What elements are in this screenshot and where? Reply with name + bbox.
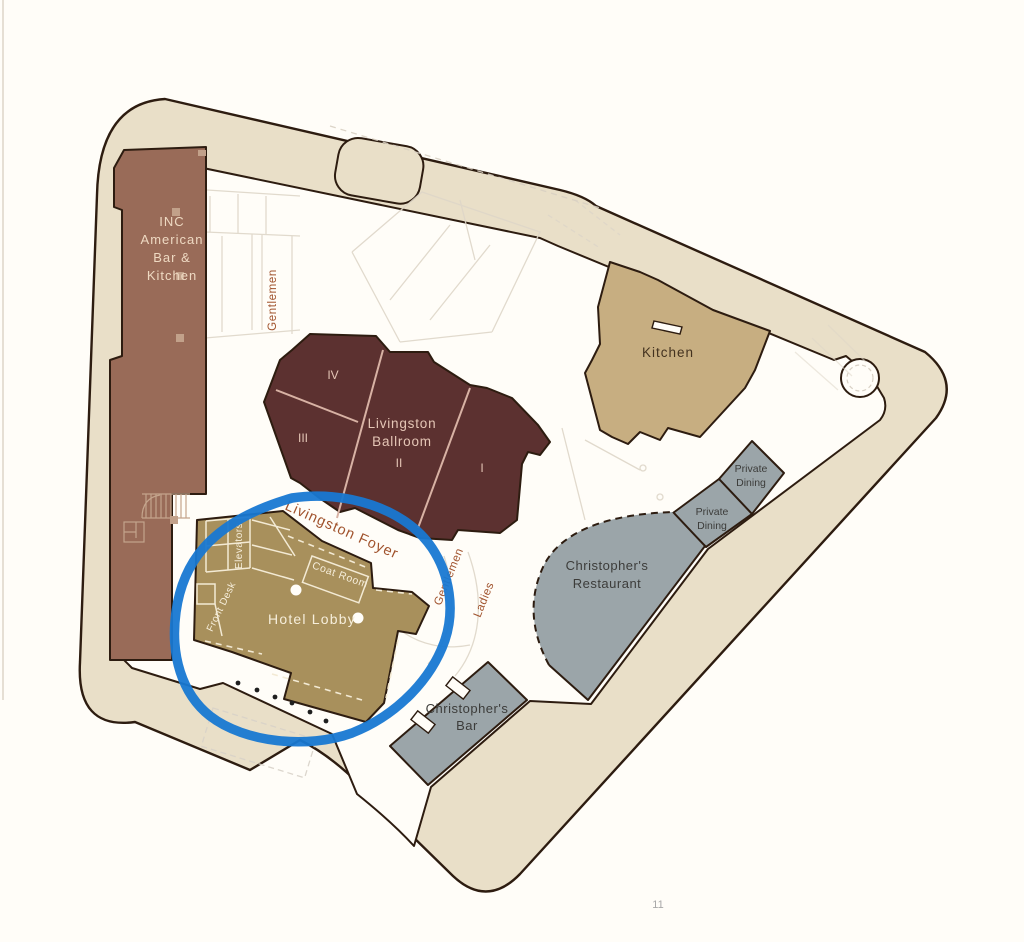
- ballroom-section-3: III: [298, 431, 308, 445]
- gentlemen-upper-label: Gentlemen: [267, 269, 279, 331]
- lobby-label: Hotel Lobby: [268, 611, 356, 627]
- inc-label-1: INC: [159, 214, 184, 229]
- ballroom-section-2: II: [396, 456, 403, 470]
- ballroom-section-4: IV: [327, 368, 338, 382]
- private-dining-1-label-2: Dining: [736, 477, 766, 489]
- inc-label-4: Kitchen: [147, 268, 197, 283]
- private-dining-2-label-1: Private: [696, 506, 729, 518]
- inc-label-2: American: [141, 232, 204, 247]
- private-dining-1-label-1: Private: [735, 463, 768, 475]
- floorplan-page: INC American Bar & Kitchen Gentlemen Liv…: [0, 0, 1024, 942]
- ballroom-label-1: Livingston: [368, 416, 437, 431]
- restaurant-label-1: Christopher's: [566, 558, 649, 573]
- page-number: 11: [652, 899, 663, 911]
- restaurant-label-2: Restaurant: [573, 576, 642, 591]
- bar-label-1: Christopher's: [426, 701, 509, 716]
- bar-label-2: Bar: [456, 718, 478, 733]
- ballroom-label-2: Ballroom: [372, 434, 432, 449]
- hotel-floorplan-svg: INC American Bar & Kitchen Gentlemen Liv…: [0, 0, 1024, 942]
- kitchen-label: Kitchen: [642, 345, 694, 360]
- ballroom-section-1: I: [480, 461, 483, 475]
- private-dining-2-label-2: Dining: [697, 520, 727, 532]
- inc-label-3: Bar &: [153, 250, 191, 265]
- elevators-label: Elevators: [234, 523, 245, 569]
- lobby-column-dot-1: [291, 585, 302, 596]
